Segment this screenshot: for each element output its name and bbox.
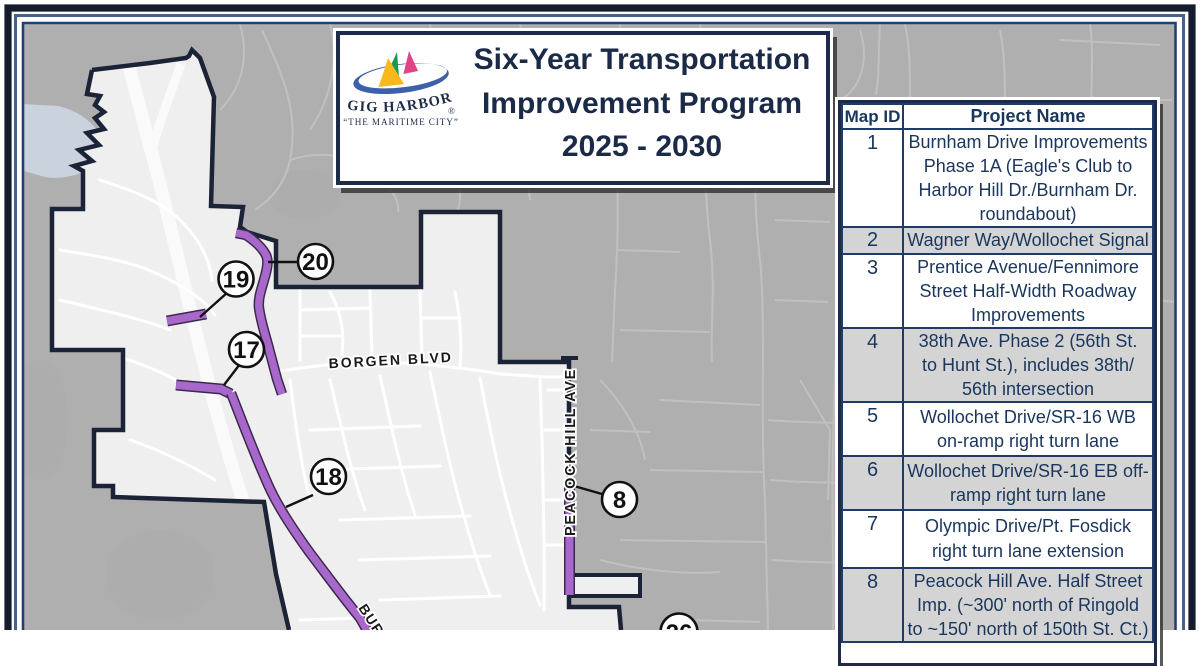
- svg-text:PEACOCK HILL AVE: PEACOCK HILL AVE: [563, 368, 579, 536]
- svg-text:18: 18: [315, 464, 342, 491]
- svg-text:“THE MARITIME CITY”: “THE MARITIME CITY”: [343, 117, 459, 127]
- svg-text:26: 26: [666, 620, 693, 630]
- svg-text:17: 17: [233, 337, 260, 364]
- svg-text:®: ®: [448, 106, 455, 116]
- svg-text:GIG HARBOR: GIG HARBOR: [346, 89, 454, 115]
- svg-text:8: 8: [613, 487, 626, 514]
- svg-text:20: 20: [302, 249, 329, 276]
- svg-text:19: 19: [223, 267, 250, 294]
